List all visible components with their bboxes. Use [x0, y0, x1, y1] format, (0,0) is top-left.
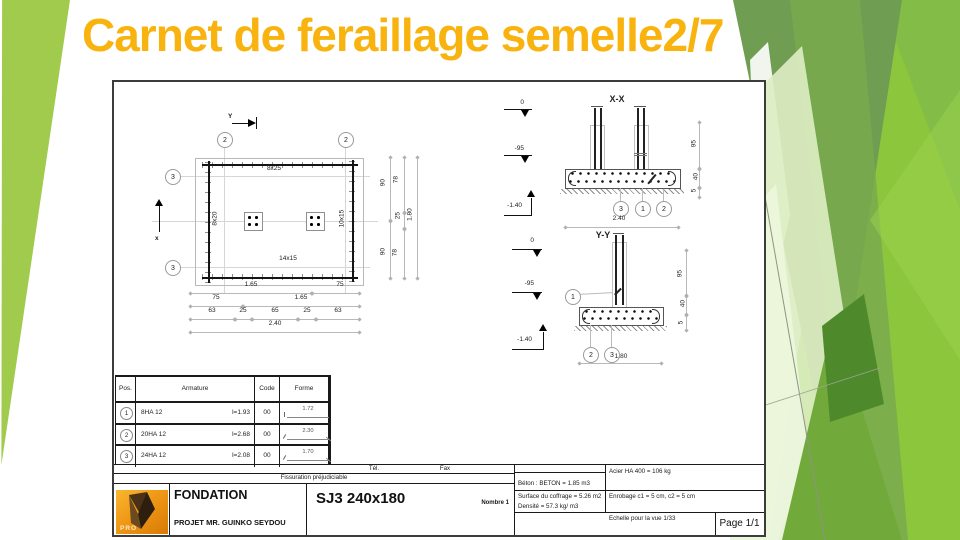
forme-dim: 2.30	[286, 428, 330, 434]
acier-value: Acier HA 400 = 106 kg	[609, 469, 671, 476]
grid-label: 3	[171, 265, 175, 272]
tb-line	[514, 472, 605, 473]
dim-label: 75	[201, 294, 231, 301]
surface-value: Surface du coffrage = 5.26 m2	[518, 494, 601, 501]
level-label: -95	[506, 280, 534, 287]
forme-dim: 1.72	[286, 406, 330, 412]
dim-label: 1.65	[236, 281, 266, 288]
anchor-dots	[310, 216, 313, 219]
level-riser	[531, 198, 532, 215]
position-number: 1	[125, 411, 128, 417]
armature-cell: 24HA 12	[141, 452, 166, 459]
tb-line	[514, 512, 764, 513]
position-number: 3	[619, 206, 623, 213]
length-cell: l=2.68	[210, 431, 250, 438]
dim-line	[404, 229, 405, 279]
position-number: 2	[589, 352, 593, 359]
table-row-line	[116, 423, 329, 425]
table-header-forme: Forme	[279, 385, 329, 392]
dim-label: 65	[260, 307, 290, 314]
dim-label: 90	[379, 171, 386, 195]
position-bubble: 1	[120, 407, 133, 420]
enrobage-value: Enrobage c1 = 5 cm, c2 = 5 cm	[609, 494, 695, 501]
tb-divider	[605, 464, 606, 512]
lap-splice-mark	[634, 153, 647, 154]
forme-line	[287, 417, 329, 418]
rebar-bar-left	[208, 161, 210, 283]
project-name: FONDATION	[174, 488, 247, 502]
forme-hook	[283, 434, 286, 439]
position-number: 3	[125, 454, 128, 460]
dim-label: 63	[197, 307, 227, 314]
armature-cell: 8HA 12	[141, 409, 162, 416]
dim-line	[579, 363, 662, 364]
dim-label: 90	[379, 240, 386, 264]
level-arrow-down	[521, 156, 529, 163]
armature-cell: 20HA 12	[141, 431, 166, 438]
grid-label: 2	[344, 137, 348, 144]
densite-value: Densité = 57.3 kg/ m3	[518, 504, 578, 511]
rebar-bar-right	[352, 160, 354, 282]
dim-label-total: 2.40	[260, 320, 290, 327]
grid-bubble: 2	[338, 132, 354, 148]
dim-line	[404, 157, 405, 213]
software-logo: PRO	[116, 490, 168, 534]
project-subtitle: PROJET MR. GUINKO SEYDOU	[174, 518, 286, 527]
position-number: 1	[641, 206, 645, 213]
level-arrow-up	[539, 324, 547, 331]
grid-label: 3	[171, 174, 175, 181]
leader-line	[611, 325, 612, 347]
nombre-label: Nombre 1	[439, 500, 509, 507]
axis-x-arrow	[155, 199, 163, 206]
axis-y-arrow	[248, 119, 256, 127]
length-cell: l=1.93	[210, 409, 250, 416]
level-label: -1.40	[492, 202, 522, 209]
tb-line	[114, 464, 764, 465]
axis-y-label: Y	[228, 113, 232, 120]
break-mark	[634, 106, 646, 107]
rebar-count-top: 8x25	[259, 165, 289, 172]
level-arrow-down	[521, 110, 529, 117]
dim-label: 1.65	[286, 294, 316, 301]
rebar-dots-bottom	[583, 317, 658, 321]
dim-label: 5	[690, 179, 697, 203]
beton-value: Béton : BETON = 1.85 m3	[518, 481, 590, 488]
code-cell: 00	[254, 431, 280, 438]
background-left-triangle	[0, 0, 70, 465]
tb-divider	[306, 483, 307, 535]
rebar-bar-bottom	[202, 277, 358, 279]
dim-line	[686, 315, 687, 331]
page-number: Page 1/1	[715, 518, 764, 529]
dim-line	[312, 293, 360, 294]
dim-label: 95	[676, 262, 683, 286]
presentation-slide[interactable]: 2 2 3 3 Y x 8x25 14x15 8x20 10x15 1.65 7…	[0, 0, 960, 540]
level-line	[504, 215, 532, 216]
dim-line	[565, 227, 679, 228]
rebar-dots-top	[571, 172, 673, 176]
table-row-line	[116, 401, 329, 403]
rebar-count-bottom: 14x15	[271, 255, 305, 262]
position-bubble: 2	[583, 347, 599, 363]
dim-label: 75	[325, 281, 355, 288]
rebar-dots-bottom	[569, 180, 675, 184]
table-header-pos: Pos.	[116, 385, 135, 392]
fax-label: Fax	[430, 466, 460, 473]
axis-y-line	[232, 123, 248, 124]
dim-label: 63	[323, 307, 353, 314]
tb-divider	[514, 464, 515, 535]
position-bubble: 2	[656, 201, 672, 217]
leader-line	[642, 188, 643, 201]
level-riser	[543, 332, 544, 349]
dim-line	[417, 157, 418, 279]
column-pad	[244, 212, 263, 231]
grid-bubble: 2	[217, 132, 233, 148]
forme-hook	[284, 412, 285, 417]
rebar-count-right: 10x15	[338, 205, 345, 233]
level-arrow-down	[533, 293, 541, 300]
dim-label: 78	[391, 241, 398, 265]
break-mark	[591, 106, 603, 107]
dim-line	[699, 122, 700, 169]
dim-label: 95	[690, 132, 697, 156]
leader-line	[663, 189, 664, 201]
logo-pro-label: PRO	[120, 525, 137, 532]
fissuration-label: Fissuration préjudiciable	[114, 475, 514, 482]
dim-label: 5	[677, 311, 684, 335]
leader-line	[590, 325, 591, 347]
forme-line	[287, 460, 329, 461]
dim-label: 1.80	[606, 353, 636, 360]
rebar-count-left: 8x20	[211, 205, 218, 233]
tb-line	[114, 483, 514, 484]
dim-label: 25	[292, 307, 322, 314]
position-bubble: 3	[120, 450, 133, 463]
rebar-dots-top	[585, 310, 656, 314]
position-number: 1	[571, 294, 575, 301]
forme-line	[287, 439, 329, 440]
ground-hatch	[574, 326, 667, 331]
position-bubble: 1	[635, 201, 651, 217]
dim-label: 2.40	[604, 215, 634, 222]
tb-line	[514, 490, 764, 491]
code-cell: 00	[254, 452, 280, 459]
forme-hook	[283, 455, 286, 460]
position-bubble: 2	[120, 429, 133, 442]
forme-dim: 1.70	[286, 449, 330, 455]
level-label: -1.40	[504, 336, 532, 343]
rebar-hook-left	[568, 171, 576, 186]
level-arrow-up	[527, 190, 535, 197]
axis-y-endbar	[256, 117, 257, 129]
table-header-armature: Armature	[135, 385, 255, 392]
dim-label: 78	[392, 168, 399, 192]
leader-line	[579, 292, 613, 295]
dim-line	[190, 319, 235, 320]
dim-line	[316, 319, 360, 320]
break-mark	[613, 233, 624, 234]
ground-hatch	[560, 189, 684, 194]
column-pad	[306, 212, 325, 231]
rebar-table: Pos. Armature Code Forme 1 8HA 12 l=1.93…	[115, 375, 331, 465]
title-block: Tél. Fax Fissuration préjudiciable PRO F…	[114, 464, 764, 535]
length-cell: l=2.08	[210, 452, 250, 459]
level-line	[512, 349, 544, 350]
column-outline	[590, 125, 605, 174]
dim-line	[699, 188, 700, 198]
level-label: 0	[494, 99, 524, 106]
echelle-value: Echelle pour la vue 1/33	[609, 516, 675, 523]
anchor-dots	[248, 216, 251, 219]
axis-x-line	[159, 206, 160, 232]
slide-title: Carnet de feraillage semelle2/7	[82, 8, 723, 62]
dim-line	[390, 157, 391, 221]
level-label: -95	[494, 145, 524, 152]
grid-bubble: 3	[165, 169, 181, 185]
code-cell: 00	[254, 409, 280, 416]
leader-line	[620, 188, 621, 201]
grid-bubble: 3	[165, 260, 181, 276]
tel-label: Tél.	[359, 466, 389, 473]
position-bubble: 1	[565, 289, 581, 305]
table-header-code: Code	[254, 385, 280, 392]
dim-line	[190, 332, 360, 333]
position-number: 2	[125, 433, 128, 439]
column-rebar	[622, 235, 624, 305]
table-row-line	[116, 444, 329, 446]
axis-x-label: x	[155, 235, 159, 242]
grid-label: 2	[223, 137, 227, 144]
section-title: X-X	[602, 95, 632, 105]
tb-divider	[169, 483, 170, 535]
level-arrow-down	[533, 250, 541, 257]
drawing-sheet: 2 2 3 3 Y x 8x25 14x15 8x20 10x15 1.65 7…	[112, 80, 766, 537]
dim-label-total: 1.80	[406, 203, 413, 227]
dim-label: 25	[394, 204, 401, 228]
level-label: 0	[506, 237, 534, 244]
lap-splice-mark	[634, 155, 647, 156]
rebar-hook-left	[582, 309, 590, 324]
dim-label: 25	[228, 307, 258, 314]
drawing-reference: SJ3 240x180	[316, 490, 405, 507]
position-number: 2	[662, 206, 666, 213]
dim-line	[686, 250, 687, 296]
